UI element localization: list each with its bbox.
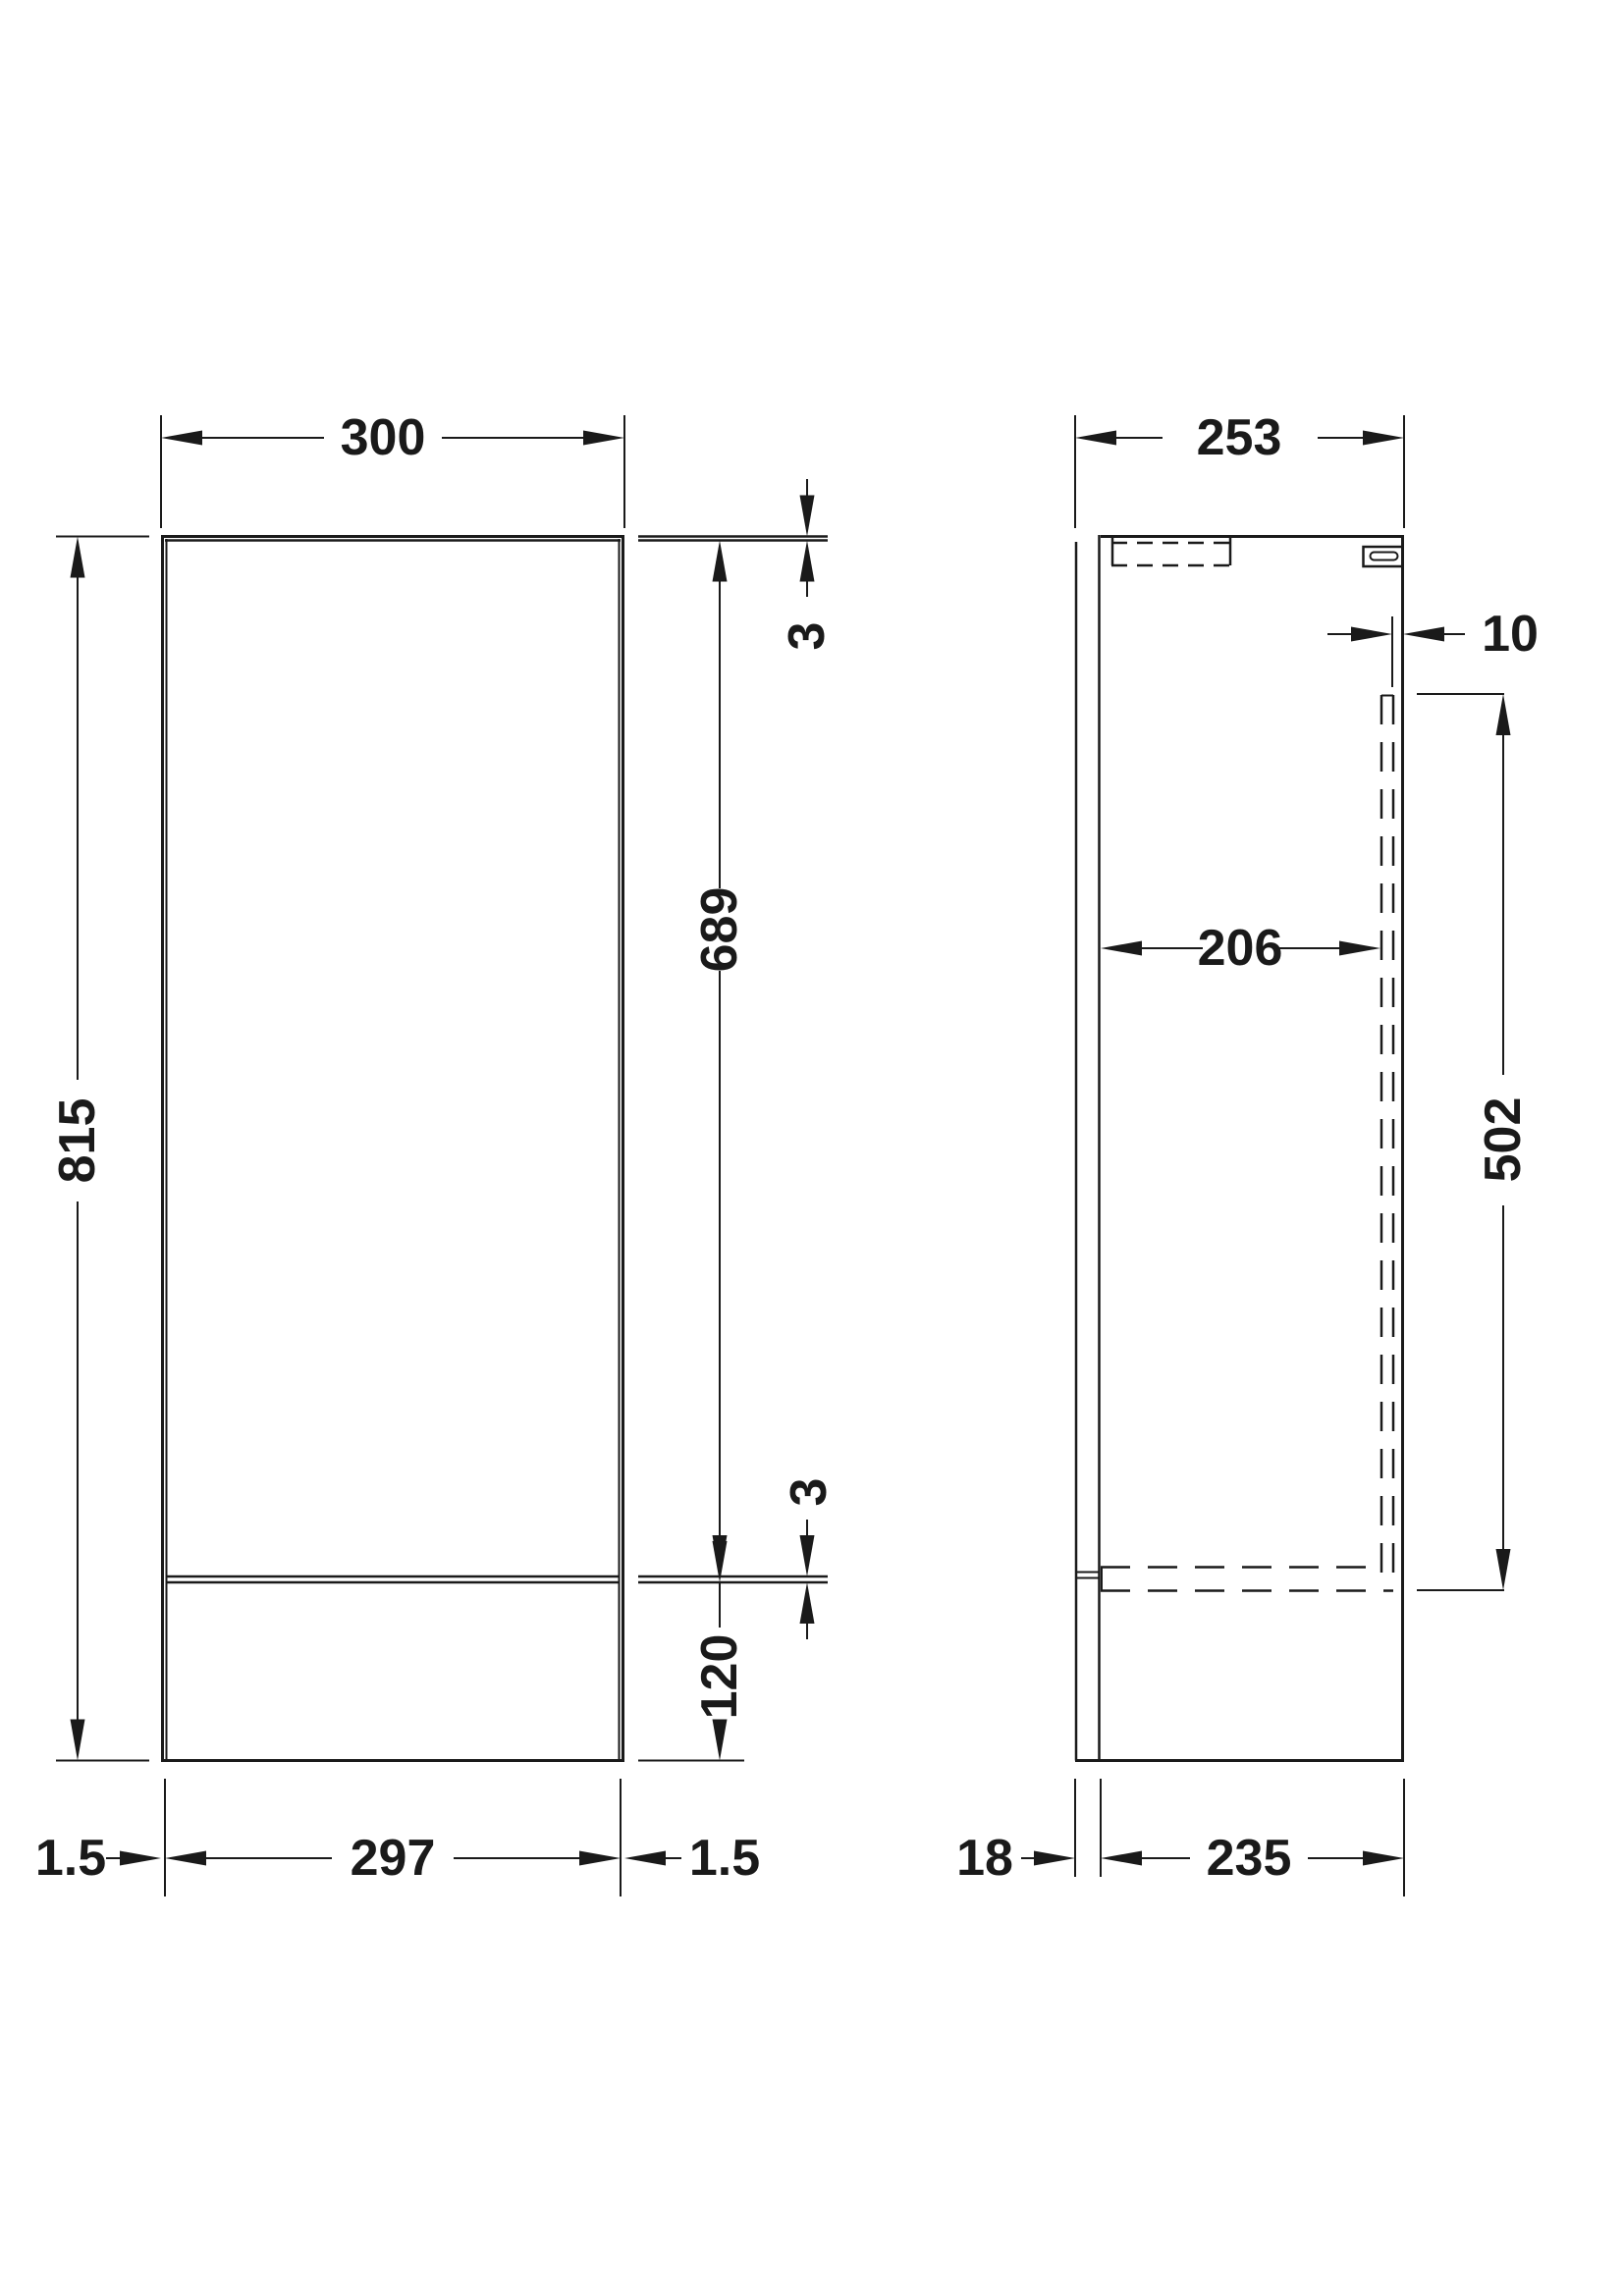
arrowhead-left bbox=[165, 1851, 206, 1866]
back-panel-dashed-edges bbox=[1381, 695, 1393, 1590]
dim-side-recess-height-label: 502 bbox=[1475, 1097, 1532, 1183]
arrowhead-left bbox=[1101, 941, 1142, 956]
dim-front-overall-width: 300 bbox=[161, 409, 624, 528]
front-door-bottom-edge bbox=[167, 1576, 620, 1582]
dim-side-depth-label: 253 bbox=[1197, 409, 1282, 466]
arrowhead-right bbox=[579, 1851, 621, 1866]
dim-front-height-label: 815 bbox=[49, 1098, 106, 1184]
arrowhead-down bbox=[71, 1720, 85, 1761]
dim-front-plinth-height: 120 bbox=[638, 1520, 748, 1761]
side-dimensions: 253 10 206 502 bbox=[956, 409, 1539, 1896]
dim-front-plinth-width: 297 bbox=[165, 1779, 621, 1896]
arrowhead-down bbox=[1496, 1549, 1511, 1590]
dim-extension-lines bbox=[638, 537, 828, 541]
dim-front-inset-right-label: 1.5 bbox=[689, 1830, 760, 1887]
dim-side-internal-depth: 206 bbox=[1101, 920, 1380, 977]
arrowhead-up bbox=[713, 541, 728, 582]
side-hanging-bracket bbox=[1364, 547, 1403, 566]
dim-front-top-panel: 3 bbox=[638, 479, 836, 650]
dim-side-back-offset-label: 10 bbox=[1482, 606, 1539, 663]
dim-front-inset-right: 1.5 bbox=[624, 1830, 760, 1887]
dim-front-door-height-label: 689 bbox=[691, 887, 748, 973]
arrowhead-up bbox=[800, 541, 815, 582]
dim-front-overall-height: 815 bbox=[49, 537, 149, 1761]
side-top-rail-hidden bbox=[1111, 538, 1231, 565]
dim-side-carcass-depth-label: 235 bbox=[1207, 1830, 1292, 1887]
dim-side-internal-depth-label: 206 bbox=[1198, 920, 1283, 977]
arrowhead-right bbox=[583, 431, 624, 446]
dim-front-door-gap: 3 bbox=[638, 1478, 838, 1639]
dim-front-width-label: 300 bbox=[341, 409, 426, 466]
front-dimensions: 300 815 3 689 bbox=[35, 409, 838, 1896]
arrowhead-down bbox=[800, 1535, 815, 1576]
dim-side-recess-height: 502 bbox=[1417, 694, 1532, 1590]
dim-extension-lines bbox=[638, 1576, 828, 1582]
arrowhead-right bbox=[1363, 431, 1404, 446]
dim-extension-lines bbox=[1075, 1779, 1101, 1877]
dim-front-door-gap-label: 3 bbox=[781, 1478, 838, 1507]
arrowhead-right bbox=[1034, 1851, 1075, 1866]
dim-side-door-thickness-label: 18 bbox=[956, 1830, 1013, 1887]
arrowhead-right bbox=[120, 1851, 161, 1866]
arrowhead-left bbox=[161, 431, 202, 446]
dim-front-top-panel-label: 3 bbox=[779, 622, 836, 651]
side-door-bottom-notch bbox=[1076, 1573, 1100, 1578]
rail-dashed-edges bbox=[1111, 543, 1231, 565]
dim-side-carcass-depth: 235 bbox=[1101, 1779, 1404, 1896]
dim-side-door-thickness: 18 bbox=[956, 1779, 1101, 1887]
side-bottom-shelf-hidden bbox=[1101, 1567, 1393, 1591]
cabinet-dimension-drawing: 300 815 3 689 bbox=[0, 0, 1623, 2296]
technical-drawing-sheet: 300 815 3 689 bbox=[0, 0, 1623, 2296]
arrowhead-left bbox=[624, 1851, 666, 1866]
dim-side-overall-depth: 253 bbox=[1075, 409, 1404, 528]
arrowhead-up bbox=[800, 1582, 815, 1624]
side-back-panel-hidden bbox=[1381, 695, 1393, 1590]
dim-front-inset-left: 1.5 bbox=[35, 1830, 161, 1887]
arrowhead-right bbox=[1363, 1851, 1404, 1866]
arrowhead-up bbox=[71, 537, 85, 578]
dim-front-plinth-height-label: 120 bbox=[691, 1634, 748, 1720]
dim-front-plinth-width-label: 297 bbox=[351, 1830, 436, 1887]
dim-front-door-height: 689 bbox=[691, 541, 748, 1577]
arrowhead-down bbox=[713, 1720, 728, 1761]
arrowhead-up bbox=[1496, 694, 1511, 735]
side-view bbox=[1075, 535, 1404, 1762]
arrowhead-right bbox=[1351, 627, 1392, 642]
front-view bbox=[161, 535, 624, 1762]
dim-front-inset-left-label: 1.5 bbox=[35, 1830, 106, 1887]
arrowhead-left bbox=[1403, 627, 1444, 642]
arrowhead-down bbox=[800, 496, 815, 537]
dim-side-back-offset: 10 bbox=[1327, 606, 1539, 687]
bracket-slot bbox=[1371, 553, 1398, 561]
arrowhead-left bbox=[1075, 431, 1116, 446]
arrowhead-left bbox=[1101, 1851, 1142, 1866]
shelf-dashed-edges bbox=[1101, 1568, 1393, 1591]
arrowhead-right bbox=[1339, 941, 1380, 956]
